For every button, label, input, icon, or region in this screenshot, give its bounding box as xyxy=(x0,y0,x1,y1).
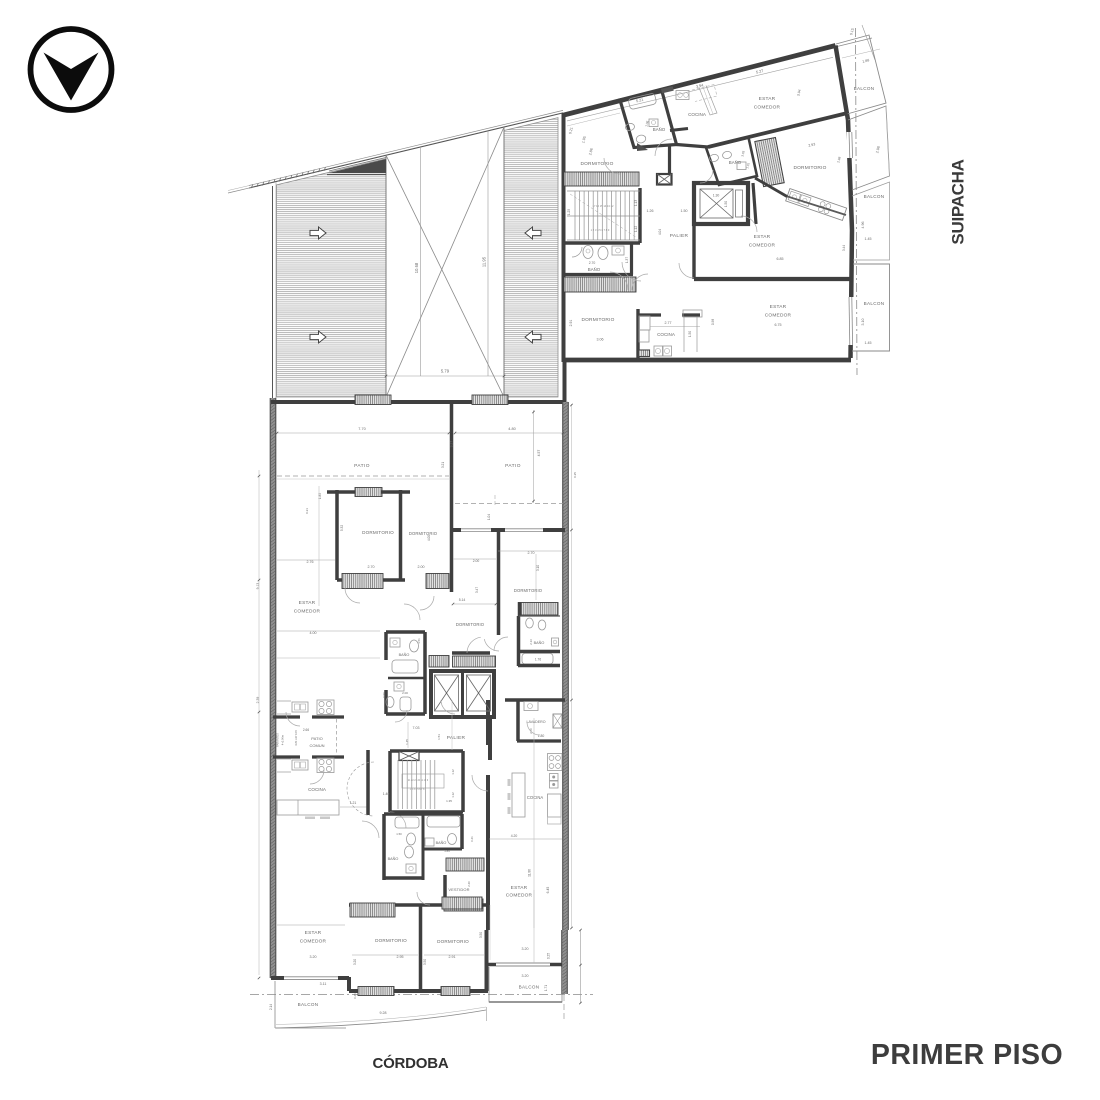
svg-text:PALIER: PALIER xyxy=(447,735,466,741)
svg-text:21 22 21 20 11 10 9: 21 22 21 20 11 10 9 xyxy=(408,780,429,782)
svg-text:1.45: 1.45 xyxy=(865,341,872,345)
svg-text:BALCON: BALCON xyxy=(864,301,885,306)
svg-text:5.14: 5.14 xyxy=(459,598,466,602)
svg-text:1.12: 1.12 xyxy=(634,226,638,232)
svg-text:ESTAR: ESTAR xyxy=(511,885,528,891)
svg-text:1.12: 1.12 xyxy=(451,769,455,775)
svg-text:2.66: 2.66 xyxy=(303,728,309,732)
svg-text:1.51: 1.51 xyxy=(417,638,421,644)
svg-text:2.91: 2.91 xyxy=(449,955,456,959)
svg-text:VESTIDOR: VESTIDOR xyxy=(448,887,469,892)
svg-text:DORMITORIO: DORMITORIO xyxy=(456,622,485,627)
svg-text:COCINA: COCINA xyxy=(308,787,327,792)
svg-text:1.37: 1.37 xyxy=(625,257,629,263)
svg-text:DORMITORIO: DORMITORIO xyxy=(514,588,543,593)
svg-text:0.21: 0.21 xyxy=(470,836,474,842)
svg-text:BAÑO: BAÑO xyxy=(399,652,410,657)
svg-text:BAÑO: BAÑO xyxy=(729,160,742,165)
svg-text:PATIO: PATIO xyxy=(354,463,370,469)
svg-text:3.20: 3.20 xyxy=(522,974,529,978)
svg-text:11.95: 11.95 xyxy=(482,256,487,267)
svg-text:DORMITORIO: DORMITORIO xyxy=(362,530,394,535)
svg-text:BAÑO: BAÑO xyxy=(653,127,666,132)
svg-text:4.04: 4.04 xyxy=(658,229,662,235)
svg-text:1.13: 1.13 xyxy=(634,200,638,206)
svg-text:DORMITORIO: DORMITORIO xyxy=(409,531,438,536)
svg-text:DORMITORIO: DORMITORIO xyxy=(437,939,469,944)
svg-text:CÓRDOBA: CÓRDOBA xyxy=(372,1054,448,1072)
svg-text:0.90: 0.90 xyxy=(382,692,386,698)
svg-text:DORMITORIO: DORMITORIO xyxy=(581,317,614,323)
svg-text:2.00: 2.00 xyxy=(402,691,408,695)
svg-text:SUIPACHA: SUIPACHA xyxy=(949,159,968,244)
svg-text:COCINA: COCINA xyxy=(527,795,543,800)
svg-text:2.70: 2.70 xyxy=(589,261,596,265)
svg-text:LAVADERO: LAVADERO xyxy=(526,720,545,724)
svg-text:COCINA: COCINA xyxy=(688,112,707,117)
svg-text:0.98: 0.98 xyxy=(711,319,715,325)
svg-text:2.76: 2.76 xyxy=(307,560,314,564)
svg-text:3.11: 3.11 xyxy=(320,982,327,986)
svg-text:3.27: 3.27 xyxy=(450,441,454,448)
svg-text:COMEDOR: COMEDOR xyxy=(754,105,781,111)
svg-text:1.12: 1.12 xyxy=(451,792,455,798)
svg-text:5.79: 5.79 xyxy=(441,369,450,374)
svg-text:COMUN: COMUN xyxy=(309,743,324,748)
svg-text:1.85: 1.85 xyxy=(318,493,322,499)
svg-text:1.45: 1.45 xyxy=(865,237,872,241)
svg-text:9.13: 9.13 xyxy=(256,583,260,590)
svg-text:1.76: 1.76 xyxy=(535,658,541,662)
svg-text:7.03: 7.03 xyxy=(413,726,420,730)
svg-text:BAÑO: BAÑO xyxy=(388,856,399,861)
svg-text:1.04: 1.04 xyxy=(487,514,491,520)
svg-text:ESTAR: ESTAR xyxy=(299,600,316,606)
svg-text:1 2 3 4 5 6 7 8 9: 1 2 3 4 5 6 7 8 9 xyxy=(591,228,610,232)
svg-text:2.13: 2.13 xyxy=(529,639,533,645)
svg-text:BAÑO: BAÑO xyxy=(436,840,447,845)
svg-text:6.45: 6.45 xyxy=(546,887,550,894)
svg-text:0.25: 0.25 xyxy=(353,993,357,999)
svg-text:PALIER: PALIER xyxy=(670,233,689,239)
svg-text:BALCON: BALCON xyxy=(864,194,885,199)
svg-text:1.45: 1.45 xyxy=(405,739,409,745)
svg-text:3.06: 3.06 xyxy=(597,338,604,342)
svg-text:ESTAR: ESTAR xyxy=(770,304,787,310)
svg-text:5.32: 5.32 xyxy=(340,525,344,531)
svg-text:4.00: 4.00 xyxy=(427,535,431,541)
svg-text:1.50: 1.50 xyxy=(681,209,688,213)
svg-text:2.39: 2.39 xyxy=(256,697,260,704)
svg-text:17 16 15 14 13 12: 17 16 15 14 13 12 xyxy=(593,204,614,208)
svg-text:1.51: 1.51 xyxy=(437,734,441,740)
svg-text:0.25: 0.25 xyxy=(573,472,577,478)
svg-text:DORMITORIO: DORMITORIO xyxy=(793,165,826,171)
svg-text:1 2 3 4 5 6 7 8: 1 2 3 4 5 6 7 8 xyxy=(410,789,425,791)
svg-text:4.57: 4.57 xyxy=(537,450,541,457)
svg-text:PRIMER PISO: PRIMER PISO xyxy=(871,1039,1063,1071)
svg-text:ESTAR: ESTAR xyxy=(305,930,322,936)
svg-text:10.68: 10.68 xyxy=(414,262,419,273)
svg-text:0.25 1.67 0.70: 0.25 1.67 0.70 xyxy=(295,730,298,746)
svg-text:DORMITORIO: DORMITORIO xyxy=(375,938,407,943)
svg-text:PARANTES: PARANTES xyxy=(276,733,280,747)
svg-text:2.91: 2.91 xyxy=(569,320,573,327)
svg-text:2.00: 2.00 xyxy=(418,565,425,569)
svg-text:BALCON: BALCON xyxy=(854,86,875,91)
svg-text:2.14: 2.14 xyxy=(269,1004,273,1010)
svg-text:2.77: 2.77 xyxy=(665,321,672,325)
svg-text:COMEDOR: COMEDOR xyxy=(300,939,327,945)
svg-text:1.30: 1.30 xyxy=(713,194,720,198)
svg-text:0.21: 0.21 xyxy=(305,508,309,514)
svg-text:BALCON: BALCON xyxy=(519,985,540,990)
svg-text:2.20: 2.20 xyxy=(467,881,471,887)
svg-text:1.50: 1.50 xyxy=(396,832,402,836)
svg-text:1.26: 1.26 xyxy=(647,209,654,213)
svg-text:ESTAR: ESTAR xyxy=(754,234,771,240)
svg-text:1.50: 1.50 xyxy=(724,201,728,207)
svg-text:7.70: 7.70 xyxy=(358,427,365,431)
svg-text:BALCON: BALCON xyxy=(298,1002,319,1007)
svg-text:3.21: 3.21 xyxy=(441,462,445,468)
svg-text:PATIO: PATIO xyxy=(505,463,521,469)
svg-text:6.75: 6.75 xyxy=(775,323,782,327)
svg-text:BAÑO: BAÑO xyxy=(588,267,601,272)
svg-text:COMEDOR: COMEDOR xyxy=(765,313,792,319)
svg-text:4.96: 4.96 xyxy=(861,222,865,229)
svg-text:1.35: 1.35 xyxy=(446,799,452,803)
svg-text:3.44: 3.44 xyxy=(842,245,846,251)
svg-text:PATIO: PATIO xyxy=(311,736,322,741)
svg-text:3.10: 3.10 xyxy=(861,319,865,326)
svg-text:4.00: 4.00 xyxy=(310,631,317,635)
svg-text:1.71: 1.71 xyxy=(544,985,548,991)
svg-text:1.40: 1.40 xyxy=(383,792,390,796)
svg-text:3.20: 3.20 xyxy=(310,955,317,959)
svg-text:DORMITORIO: DORMITORIO xyxy=(580,161,613,167)
svg-text:4+2.00m: 4+2.00m xyxy=(281,735,285,745)
svg-text:1.25: 1.25 xyxy=(567,209,571,215)
svg-text:4.80: 4.80 xyxy=(508,427,515,431)
svg-text:COMEDOR: COMEDOR xyxy=(749,243,776,249)
svg-text:COMEDOR: COMEDOR xyxy=(294,609,321,615)
svg-text:3.50: 3.50 xyxy=(479,932,483,938)
svg-text:3.10: 3.10 xyxy=(536,565,540,571)
svg-text:BAÑO: BAÑO xyxy=(534,640,545,645)
svg-text:2.00: 2.00 xyxy=(473,559,480,563)
svg-text:4.20: 4.20 xyxy=(511,834,518,838)
svg-text:3.50: 3.50 xyxy=(423,959,427,965)
svg-text:3.20: 3.20 xyxy=(353,959,357,965)
svg-text:COCINA: COCINA xyxy=(657,332,676,337)
svg-text:3.47: 3.47 xyxy=(475,587,479,593)
svg-text:6.85: 6.85 xyxy=(777,257,784,261)
svg-text:1.50: 1.50 xyxy=(688,331,692,337)
svg-text:11.86: 11.86 xyxy=(528,869,532,877)
svg-text:2.95: 2.95 xyxy=(397,955,404,959)
svg-text:0.25: 0.25 xyxy=(547,953,551,959)
svg-text:2.70: 2.70 xyxy=(528,551,535,555)
svg-text:9.28: 9.28 xyxy=(380,1011,387,1015)
svg-text:3.20: 3.20 xyxy=(522,947,529,951)
svg-text:2.70: 2.70 xyxy=(368,565,375,569)
svg-text:COMEDOR: COMEDOR xyxy=(506,893,533,899)
svg-text:ESTAR: ESTAR xyxy=(759,96,776,102)
svg-text:1.84: 1.84 xyxy=(444,849,450,853)
